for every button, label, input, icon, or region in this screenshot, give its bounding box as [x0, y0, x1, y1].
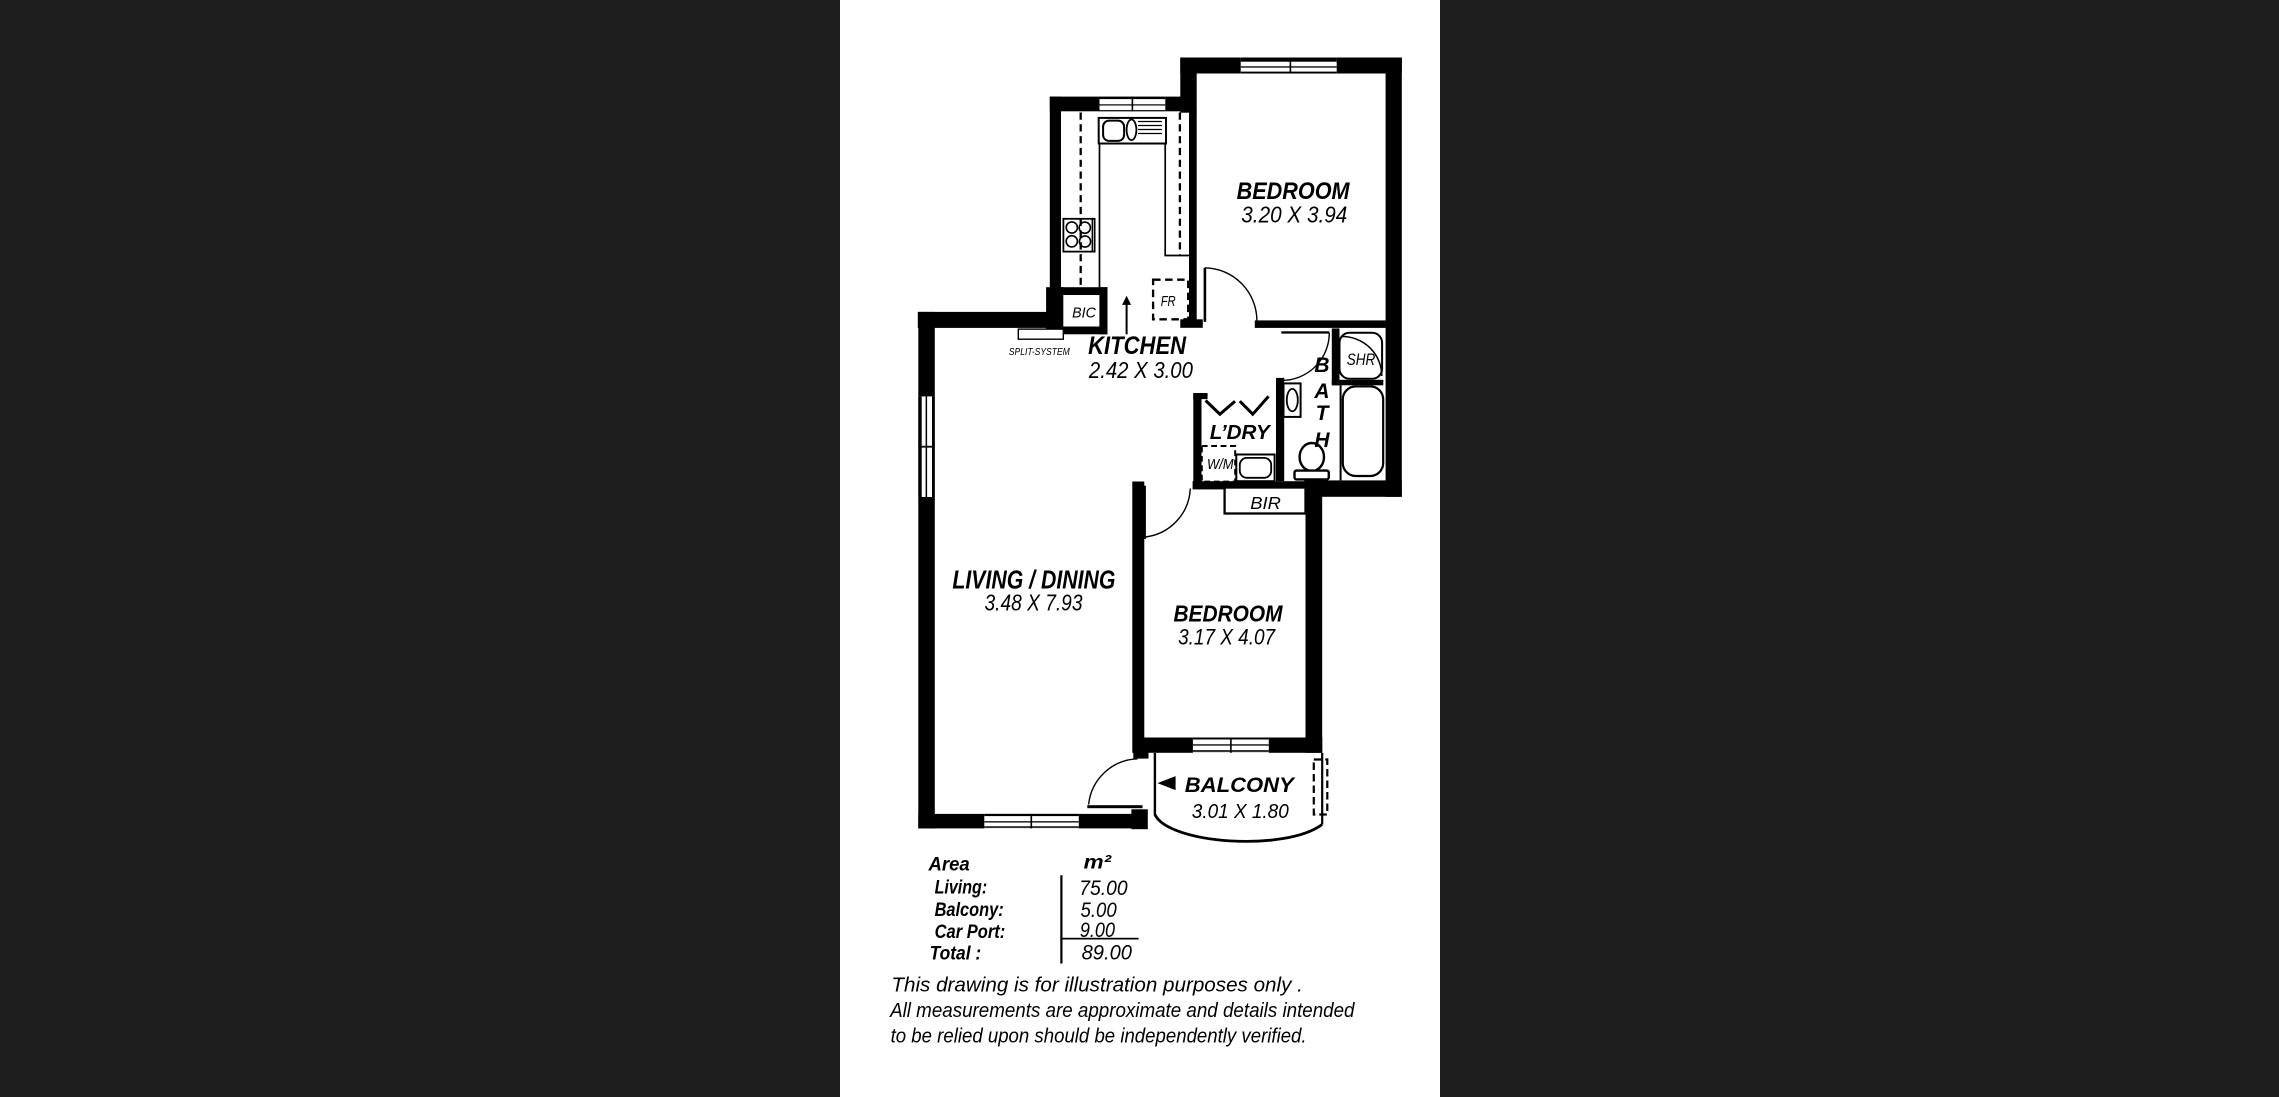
svg-text:Area: Area: [927, 853, 969, 875]
svg-text:3.48 X 7.93: 3.48 X 7.93: [984, 589, 1082, 615]
svg-text:Balcony:: Balcony:: [934, 899, 1003, 921]
svg-text:BIR: BIR: [1250, 493, 1281, 513]
svg-text:FR: FR: [1160, 294, 1175, 310]
svg-text:KITCHEN: KITCHEN: [1088, 332, 1187, 360]
svg-text:A: A: [1313, 380, 1329, 403]
svg-text:BIC: BIC: [1072, 305, 1096, 322]
svg-text:T: T: [1315, 402, 1330, 425]
svg-text:L’DRY: L’DRY: [1209, 422, 1271, 444]
svg-text:to be relied upon should be in: to be relied upon should be independentl…: [890, 1025, 1306, 1047]
svg-text:3.20 X 3.94: 3.20 X 3.94: [1241, 202, 1347, 228]
svg-text:Living:: Living:: [934, 876, 987, 898]
svg-text:SHR: SHR: [1346, 350, 1374, 369]
svg-text:3.01 X 1.80: 3.01 X 1.80: [1191, 801, 1288, 823]
svg-text:W/M: W/M: [1207, 457, 1234, 473]
svg-text:m²: m²: [1083, 852, 1111, 874]
svg-text:B: B: [1314, 354, 1329, 377]
svg-text:SPLIT-SYSTEM: SPLIT-SYSTEM: [1008, 347, 1069, 358]
svg-text:All measurements are approxima: All measurements are approximate and det…: [889, 1000, 1355, 1022]
svg-text:H: H: [1314, 429, 1330, 452]
svg-text:2.42 X 3.00: 2.42 X 3.00: [1088, 357, 1193, 383]
svg-text:3.17 X 4.07: 3.17 X 4.07: [1178, 624, 1276, 649]
svg-text:89.00: 89.00: [1081, 942, 1132, 965]
svg-text:This drawing is for illustrati: This drawing is for illustration purpose…: [891, 974, 1302, 996]
svg-text:BALCONY: BALCONY: [1184, 774, 1295, 797]
svg-text:BEDROOM: BEDROOM: [1173, 600, 1283, 626]
svg-text:Total :: Total :: [929, 942, 981, 964]
svg-text:Car Port:: Car Port:: [934, 921, 1005, 943]
svg-text:75.00: 75.00: [1079, 877, 1128, 900]
